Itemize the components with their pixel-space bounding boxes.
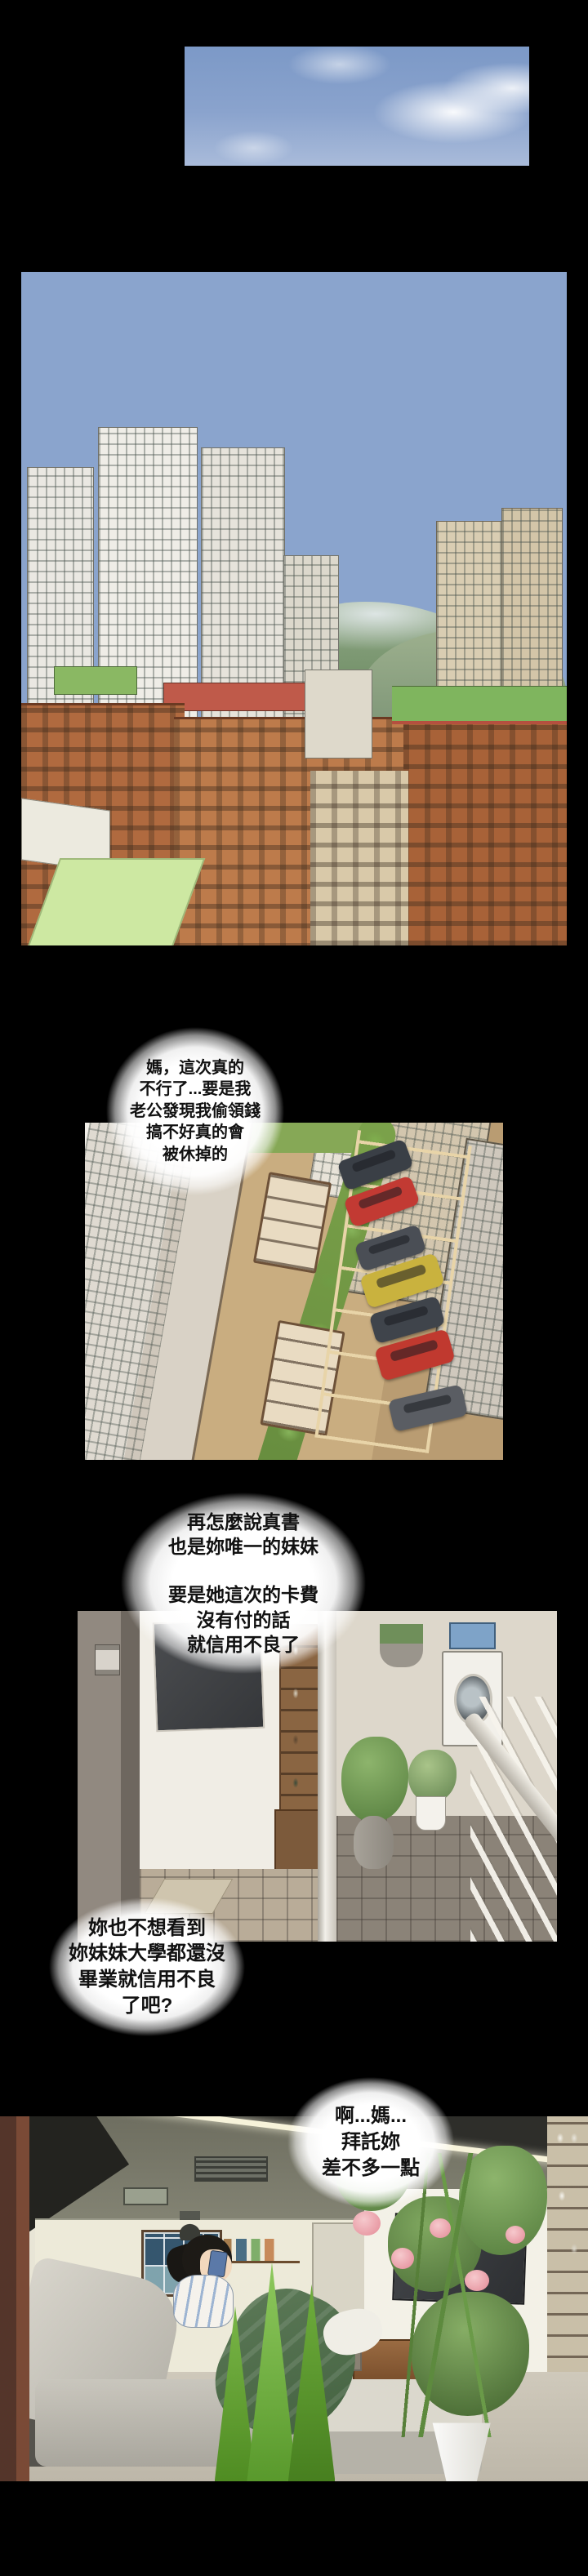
bubble-line: 不行了...要是我 [106,1079,284,1100]
webtoon-page: 媽，這次真的 不行了...要是我 老公發現我偷領錢 搞不好真的會 被休掉的 再怎… [0,0,588,2576]
bubble-line: 要是她這次的卡費 [121,1582,366,1607]
light-switch-plate [95,1644,120,1675]
green-roof-left [54,666,137,695]
panel-cityscape [21,272,567,945]
phone [207,2250,228,2278]
bubble-line: 妳也不想看到 [49,1915,245,1942]
speech-bubble-4-text: 啊...媽... 拜託妳 差不多一點 [287,2103,454,2181]
bubble-line: 拜託妳 [287,2129,454,2156]
bubble-line: 了吧? [49,1993,245,2019]
panel-sky-strip [185,47,529,166]
bubble-line: 老公發現我偷領錢 [106,1101,284,1122]
laundry-basket-blue [449,1622,496,1648]
flower-pink-3 [430,2218,451,2238]
beige-building-front [310,771,408,946]
bubble-line: 差不多一點 [287,2156,454,2182]
bubble-line: 也是妳唯一的妹妹 [121,1534,366,1559]
wood-cabinet-left-edge [0,2116,29,2481]
plant-pot-white [416,1796,446,1831]
woman-torso [173,2275,234,2328]
flower-pink-2 [391,2248,414,2269]
speech-bubble-1-text: 媽，這次真的 不行了...要是我 老公發現我偷領錢 搞不好真的會 被休掉的 [106,1057,284,1165]
speech-bubble-3: 妳也不想看到 妳妹妹大學都還沒 畢業就信用不良 了吧? [49,1898,245,2036]
red-roof-strip [163,683,312,711]
speech-bubble-2-text: 再怎麼說真書 也是妳唯一的妹妹 要是她這次的卡費 沒有付的話 就信用不良了 [121,1510,366,1657]
ceiling-panel-light [123,2187,167,2205]
bubble-line: 沒有付的話 [121,1608,366,1632]
ac-vent [194,2156,268,2182]
bubble-line: 啊...媽... [287,2103,454,2129]
speech-bubble-1: 媽，這次真的 不行了...要是我 老公發現我偷領錢 搞不好真的會 被休掉的 [106,1027,284,1195]
shelf-glassware [550,2124,585,2365]
bubble-line: 就信用不良了 [121,1632,366,1657]
bubble-line: 妳妹妹大學都還沒 [49,1941,245,1967]
flower-pink-1 [353,2211,381,2236]
bubble-line: 畢業就信用不良 [49,1967,245,1993]
bubble-line: 被休掉的 [106,1144,284,1165]
bubble-line: 媽，這次真的 [106,1057,284,1079]
speech-bubble-3-text: 妳也不想看到 妳妹妹大學都還沒 畢業就信用不良 了吧? [49,1915,245,2019]
sky [185,47,529,166]
photo-frames-shelf [224,2239,301,2263]
hanging-planter [380,1624,423,1667]
bubble-line [121,1559,366,1582]
speech-bubble-2: 再怎麼說真書 也是妳唯一的妹妹 要是她這次的卡費 沒有付的話 就信用不良了 [121,1493,366,1674]
flower-pink-4 [465,2270,489,2291]
white-midrise [305,670,372,759]
bubble-line: 搞不好真的會 [106,1122,284,1143]
plant-vase-grey [354,1816,394,1869]
speech-bubble-4: 啊...媽... 拜託妳 差不多一點 [287,2077,454,2208]
bubble-line: 再怎麼說真書 [121,1510,366,1534]
green-roof-right [392,686,567,723]
brick-building-right [403,720,567,945]
